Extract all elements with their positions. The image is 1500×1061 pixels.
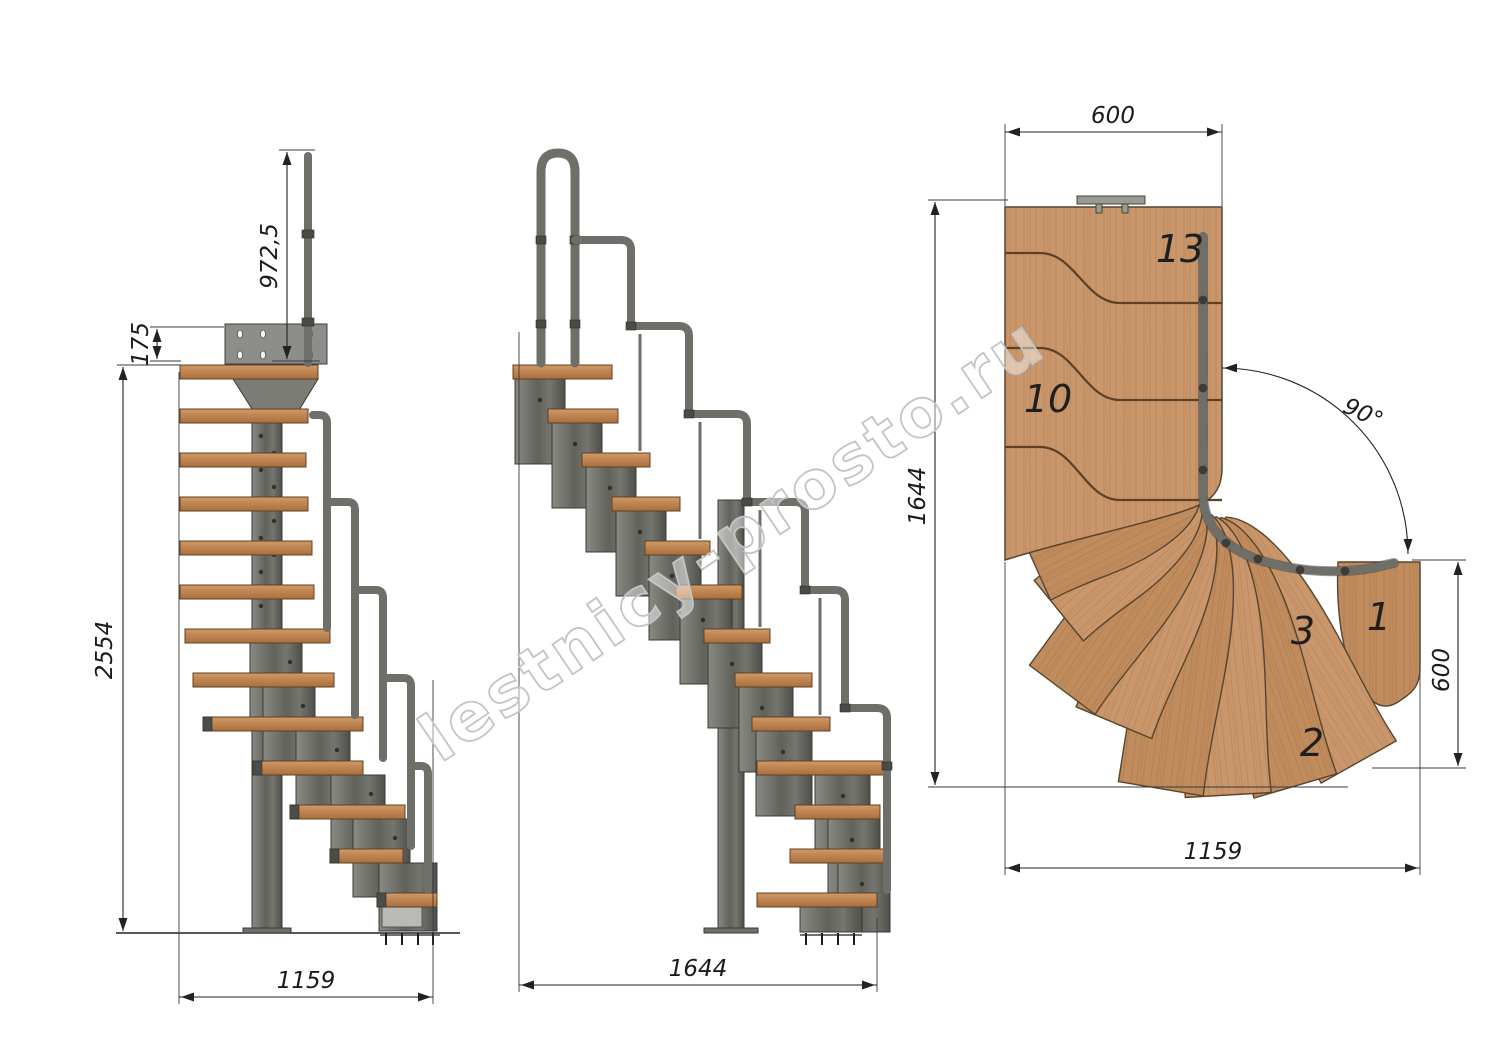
front-elevation-view: 972,5 175 2554 1159 [92,150,460,1004]
dim-text-175: 175 [128,322,154,366]
dim-text-600-right: 600 [1429,648,1455,692]
dim-text-2554: 2554 [92,621,118,680]
plan-view: 13 10 3 2 1 600 1644 90° [905,103,1466,875]
anchor-bolts [380,933,440,945]
dim-text-600-top: 600 [1091,103,1135,129]
dim-text-1159-front: 1159 [277,968,336,994]
dim-plan-flight-width: 600 [1005,103,1222,206]
side-anchor-bolts [800,933,862,945]
step-number-3: 3 [1291,609,1315,653]
step-number-2: 2 [1300,721,1324,765]
dim-text-1644-plan: 1644 [905,467,931,526]
technical-drawing-page: 972,5 175 2554 1159 [0,0,1500,1061]
staircase-drawing: 972,5 175 2554 1159 [0,0,1500,1061]
step-number-13: 13 [1156,227,1204,271]
dim-text-90deg: 90° [1339,393,1387,434]
dim-overall-height: 2554 [92,365,181,931]
step-number-1: 1 [1367,595,1391,639]
dim-text-1159-plan: 1159 [1184,839,1243,865]
side-column-base [704,928,758,933]
column-base-plate [243,928,291,933]
dim-text-1644-side: 1644 [669,956,728,982]
dim-top-offset: 175 [128,322,224,366]
dim-text-972-5: 972,5 [257,223,283,289]
